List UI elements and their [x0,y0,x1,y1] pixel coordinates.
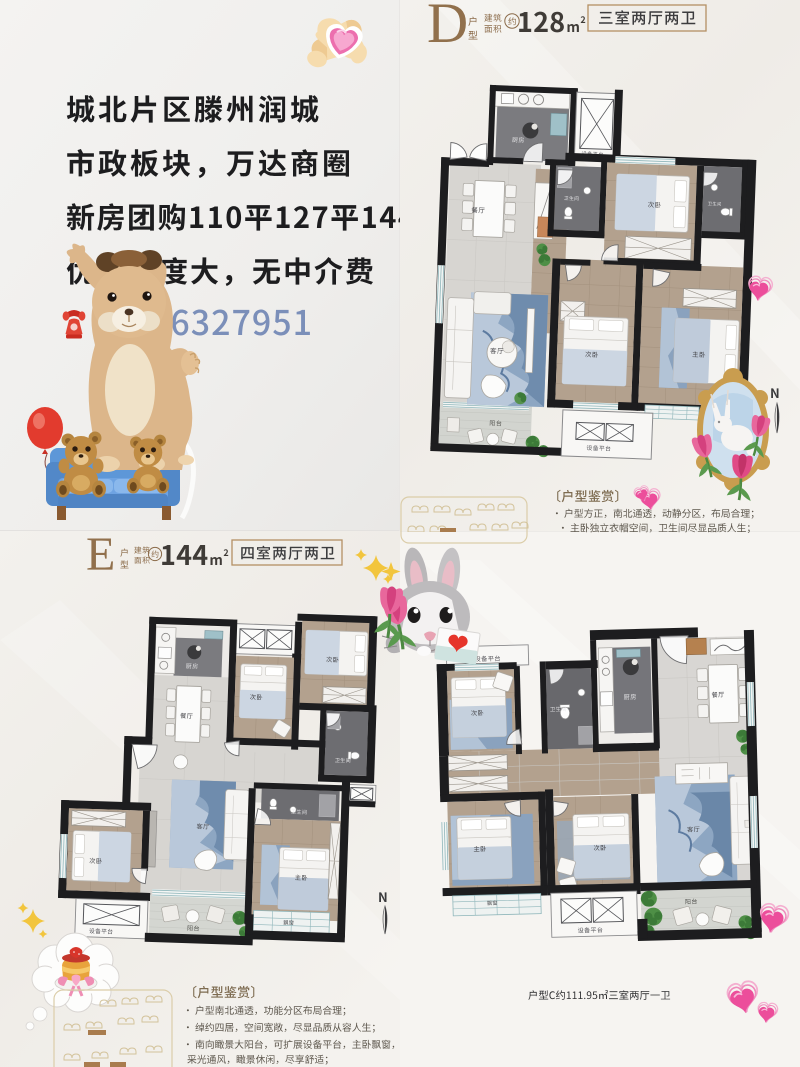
svg-text:E: E [86,528,115,581]
svg-text:D: D [427,0,468,55]
